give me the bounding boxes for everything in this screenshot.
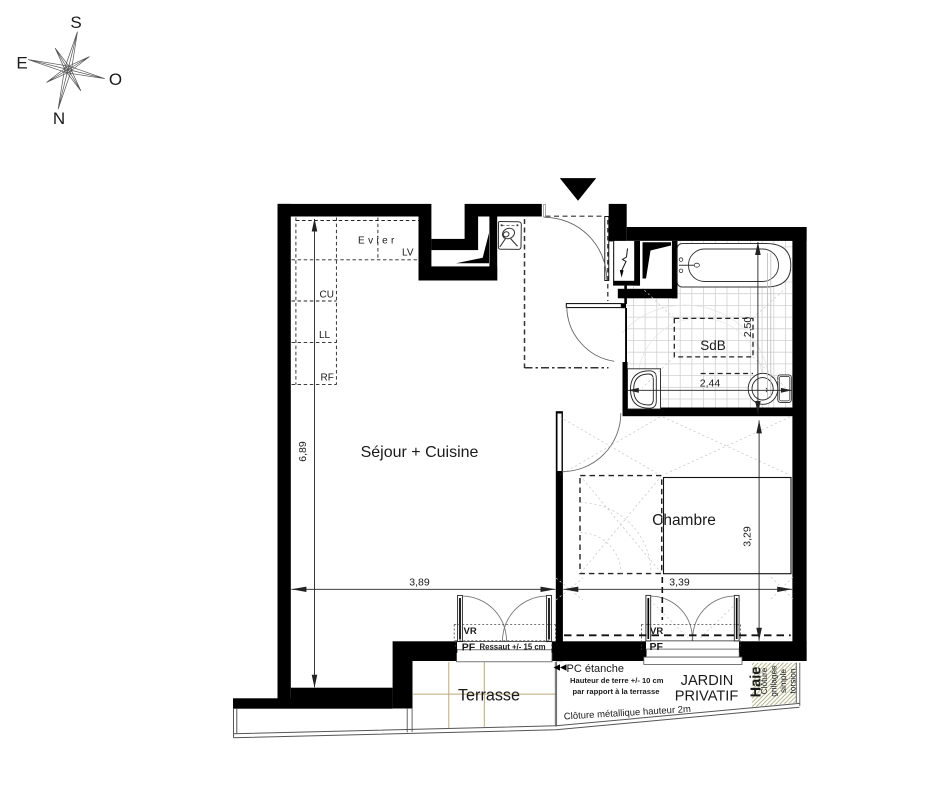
svg-text:simple: simple	[778, 669, 788, 693]
svg-text:PRIVATIF: PRIVATIF	[675, 689, 739, 705]
svg-text:Hauteur de terre +/- 10 cm: Hauteur de terre +/- 10 cm	[570, 676, 664, 685]
svg-text:Clôture: Clôture	[759, 667, 769, 694]
svg-text:S: S	[70, 13, 81, 32]
svg-text:3,39: 3,39	[669, 577, 690, 589]
svg-text:LL: LL	[319, 330, 331, 341]
svg-text:Evier: Evier	[358, 236, 398, 247]
svg-text:VR: VR	[650, 626, 663, 637]
svg-text:6,89: 6,89	[297, 441, 309, 462]
svg-text:PF: PF	[462, 641, 476, 653]
svg-text:PF: PF	[650, 641, 664, 653]
svg-text:Ressaut +/- 15 cm: Ressaut +/- 15 cm	[480, 643, 546, 652]
svg-text:CU: CU	[320, 290, 334, 301]
svg-text:E: E	[16, 54, 27, 73]
svg-text:PC étanche: PC étanche	[567, 663, 624, 675]
svg-text:SdB: SdB	[700, 338, 726, 353]
svg-text:O: O	[109, 70, 122, 89]
svg-text:3,89: 3,89	[409, 577, 430, 589]
svg-text:Séjour + Cuisine: Séjour + Cuisine	[361, 444, 479, 461]
svg-text:N: N	[53, 109, 65, 128]
svg-text:JARDIN: JARDIN	[681, 673, 734, 689]
svg-text:par rapport à la terrasse: par rapport à la terrasse	[573, 687, 660, 696]
svg-text:3,29: 3,29	[742, 526, 754, 547]
svg-text:RF: RF	[321, 373, 334, 384]
svg-text:2,44: 2,44	[700, 378, 721, 390]
svg-text:VR: VR	[464, 626, 477, 637]
svg-text:Terrasse: Terrasse	[458, 686, 520, 704]
svg-text:2,50: 2,50	[742, 317, 754, 338]
svg-text:Chambre: Chambre	[652, 512, 716, 529]
svg-text:torsion: torsion	[787, 668, 797, 693]
svg-text:LV: LV	[402, 248, 414, 259]
